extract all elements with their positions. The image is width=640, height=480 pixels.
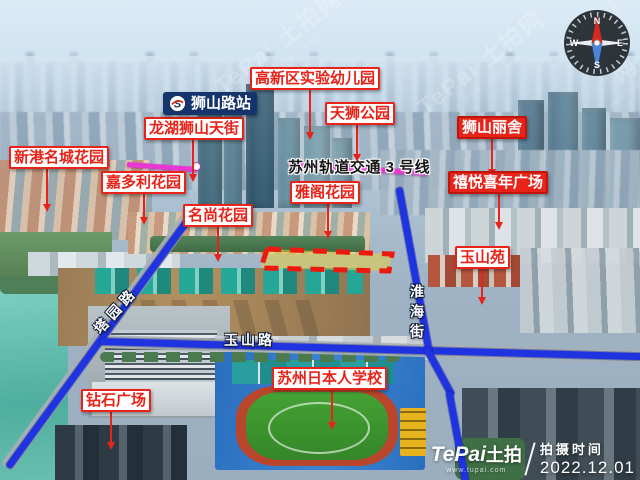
leader-line [309,87,311,133]
station-label-text: 狮山路站 [191,96,251,111]
label-shishan-road-station: S 狮山路站 [163,92,257,115]
label-suzhou-japanese-school: 苏州日本人学校 [272,367,387,390]
shoot-info: 拍摄时间 2022.12.01 [540,443,635,476]
label-zuanshi-plaza: 钻石广场 [81,389,151,412]
leader-line [327,201,329,232]
field-oval-line [268,402,370,454]
compass-west: W [570,38,579,48]
svg-text:S: S [174,98,182,110]
label-yushan-yuan: 玉山苑 [455,246,510,269]
leader-line [217,224,219,255]
tepai-logo-cn: 土拍 [486,445,522,465]
footer-brand-bar: TePai土拍 www.tupai.com 拍摄时间 2022.12.01 [431,442,635,476]
leader-line [46,165,48,205]
tepai-logo: TePai土拍 www.tupai.com [431,444,522,474]
leader-line [192,136,194,175]
huaihai-street-label: 淮海街 [407,284,427,344]
compass-north: N [594,16,601,26]
compass-south: S [594,60,600,70]
label-jiaduoli-garden: 嘉多利花园 [101,171,186,194]
label-gaoxin-experimental-kindergarten: 高新区实验幼儿园 [250,67,380,90]
leader-line [491,134,493,170]
shoot-time-label: 拍摄时间 [540,443,635,456]
label-xiyue-xinian-plaza: 禧悦喜年广场 [448,171,548,194]
label-tianshi-park: 天狮公园 [325,102,395,125]
compass-east: E [617,38,623,48]
tepai-url: www.tupai.com [431,467,522,474]
label-yage-garden: 雅阁花园 [290,181,360,204]
shoot-date: 2022.12.01 [540,459,635,476]
label-mingshang-garden: 名尚花园 [183,204,253,227]
leader-line [331,385,333,423]
suzhou-rail-transit-logo-icon: S [169,95,186,112]
tepai-logo-latin: TePai [431,443,486,466]
leader-line [498,189,500,223]
yushan-road-label: 玉山路 [224,330,275,350]
leader-line [110,408,112,443]
footer-divider [524,442,535,475]
compass-rose: N E S W [562,8,632,78]
label-longhu-shishan-tianjie: 龙湖狮山天街 [144,117,244,140]
annotated-aerial-map: TePai 土拍网 www.tupai.com TePai 土拍网 www.tu… [0,0,640,480]
label-shishan-lishe: 狮山丽舍 [457,116,527,139]
label-xingang-mingcheng-garden: 新港名城花园 [9,146,109,169]
